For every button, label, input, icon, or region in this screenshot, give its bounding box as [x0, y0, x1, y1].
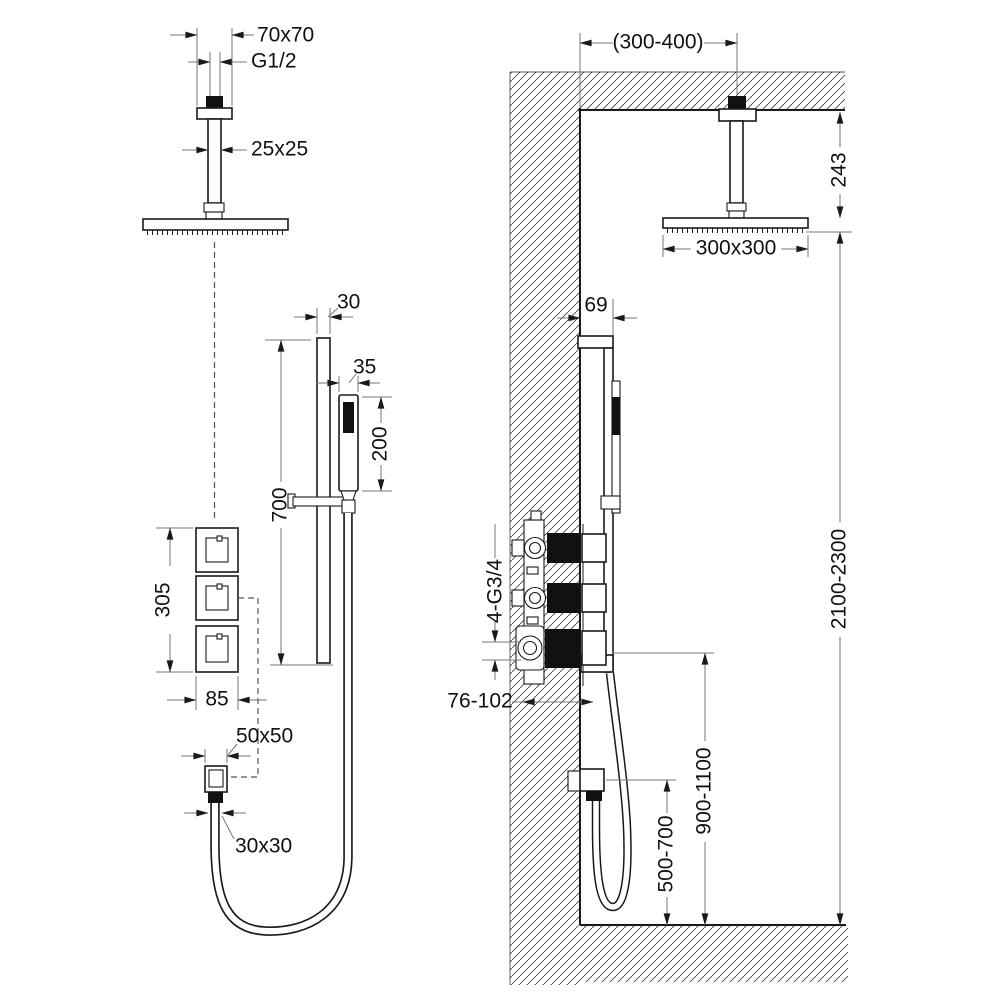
ceiling-shower-head	[143, 96, 288, 235]
dim-label: 35	[353, 356, 376, 379]
handle-notch	[217, 536, 222, 541]
hand-shower-grip	[612, 397, 620, 435]
dim-label: 69	[584, 294, 607, 317]
valve-handle-side	[582, 631, 606, 665]
shower-head-plate	[663, 218, 808, 228]
rail-clip	[531, 511, 541, 520]
ceiling-flange	[197, 108, 232, 119]
dimension-installation-height: 2100-2300	[828, 232, 851, 925]
dim-label: 500-700	[655, 815, 678, 892]
dimension-plate-width: 85	[167, 676, 267, 711]
spray-nozzles	[666, 228, 805, 233]
dimension-valves-span: 305	[152, 528, 194, 672]
drawing-page: 70x70 G1/2 25x25 30	[0, 0, 1000, 1000]
dim-label: 70x70	[257, 24, 314, 47]
handle-notch	[217, 634, 222, 639]
dim-label: 25x25	[251, 138, 308, 161]
dim-label: 76-102	[447, 690, 512, 713]
handle-notch	[217, 584, 222, 589]
bar-top-bracket	[578, 336, 613, 348]
wall-outlet	[205, 766, 227, 803]
ceiling-shower-head-side	[663, 96, 808, 233]
pipe-stub	[512, 540, 524, 556]
dim-label: 900-1100	[693, 747, 716, 834]
valve-handle-side	[582, 584, 606, 612]
dim-label: 30x30	[235, 835, 292, 858]
dim-label: 200	[369, 426, 392, 461]
rail-clip	[527, 567, 538, 574]
hand-shower-cone	[341, 491, 356, 500]
dim-label: (300-400)	[612, 31, 703, 54]
outlet-body	[209, 770, 223, 787]
valve-cartridge	[545, 629, 580, 668]
dimension-bar-width: 30	[294, 291, 360, 335]
dim-label: G1/2	[251, 50, 297, 73]
dim-label: 4-G3/4	[484, 559, 507, 624]
valve-handle	[206, 636, 228, 662]
slide-bar	[288, 338, 344, 663]
dim-label: 305	[152, 582, 175, 617]
wall-section	[510, 72, 848, 985]
outlet-connector	[586, 791, 602, 801]
handset-holder-side	[601, 496, 620, 509]
valve-handle-side	[582, 534, 606, 562]
shower-arm	[730, 121, 743, 203]
valve-cartridge	[547, 583, 580, 613]
outlet-connector	[208, 792, 223, 803]
valve-inlet-core	[530, 593, 541, 604]
dim-label: 300x300	[696, 237, 777, 260]
ceiling-hatch	[510, 72, 845, 110]
valve-handle	[206, 586, 228, 610]
dim-label: 50x50	[236, 725, 293, 748]
outlet-flange	[568, 771, 580, 791]
hose-nut	[342, 500, 355, 513]
dimension-head-drop: 243	[806, 112, 852, 232]
dim-label: 700	[269, 487, 292, 522]
right-diagram: (300-400) 243 300x300 69	[447, 31, 852, 926]
valve-trim-plates	[196, 528, 238, 672]
dimension-head-size: 300x300	[663, 235, 808, 260]
leader-line	[222, 816, 234, 839]
valve-inlet-core	[530, 543, 541, 554]
dimension-thread-size: G1/2	[188, 50, 297, 97]
arm-nut	[206, 212, 222, 219]
outlet-body	[580, 769, 604, 791]
shower-head-plate	[143, 219, 288, 230]
dim-label: 30	[337, 291, 360, 314]
spray-nozzles	[147, 230, 284, 235]
shower-panel-side	[578, 336, 620, 672]
dim-label: 2100-2300	[828, 529, 851, 629]
arm-connector	[204, 203, 224, 212]
dimension-handset-length: 200	[362, 397, 392, 491]
pipe-stub	[512, 590, 524, 606]
hand-shower-face	[343, 402, 354, 433]
dimension-outlet-connector: 30x30	[184, 813, 292, 858]
dimension-outlet-plate: 50x50	[181, 725, 293, 764]
valve-handle	[206, 538, 228, 562]
hand-shower	[339, 395, 358, 513]
shower-arm	[208, 119, 221, 203]
dim-label: 85	[205, 688, 228, 711]
connection-guide-line	[230, 598, 258, 777]
floor-hatch	[580, 925, 848, 982]
left-diagram: 70x70 G1/2 25x25 30	[143, 24, 392, 932]
rough-in-valve-assembly	[512, 511, 606, 686]
supply-pipe	[206, 96, 223, 108]
rail-clip	[527, 617, 538, 624]
technical-drawing: 70x70 G1/2 25x25 30	[0, 0, 1000, 1000]
arm-nut	[729, 211, 744, 218]
valve-cartridge	[547, 533, 580, 563]
dim-label: 243	[828, 152, 851, 187]
handset-holder	[293, 497, 344, 506]
dimension-arm-size: 25x25	[182, 138, 308, 161]
arm-connector	[727, 203, 746, 211]
valve-inlet-core	[524, 642, 537, 655]
ceiling-flange	[719, 109, 756, 121]
supply-pipe	[728, 96, 746, 109]
